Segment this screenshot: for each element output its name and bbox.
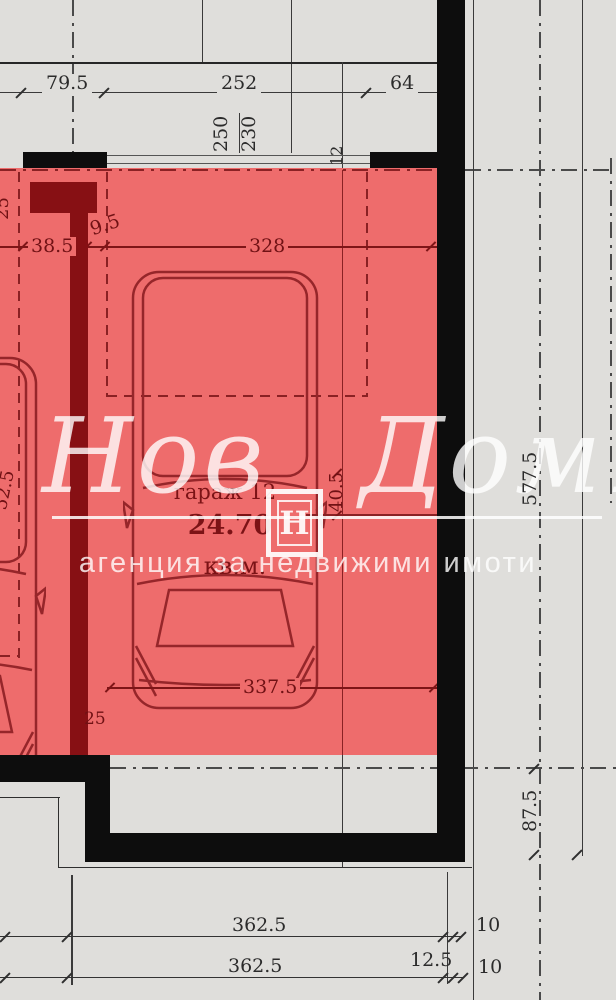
dim-label-interior-left: 38.5: [28, 237, 76, 256]
dim-tick: [98, 87, 109, 98]
wall-top-left: [23, 152, 107, 168]
watermark-underline: [52, 516, 602, 519]
dim-label-bottom-row2-wall: 12.5: [410, 951, 452, 970]
wall-line-upper-2: [291, 0, 292, 153]
axis-line-horizontal-768: [110, 767, 616, 769]
wall-step-vertical: [85, 755, 110, 862]
dim-label-interior-width: 328: [246, 237, 288, 256]
wall-bottom: [85, 833, 465, 862]
dim-tick: [528, 849, 539, 860]
dimension-line-bottom-1: [0, 936, 462, 937]
axis-line-in-red: [0, 169, 437, 171]
dim-label-right-lower: 87.5: [521, 790, 540, 832]
dimension-line-bottom-2: [0, 977, 464, 978]
dim-label-top-right: 64: [386, 74, 418, 93]
dim-label-bottom-row1: 362.5: [228, 916, 290, 935]
dim-label-depth: 337.5: [240, 678, 300, 697]
dim-tick: [457, 972, 468, 983]
extension-line-x72: [71, 875, 73, 985]
dim-label-step: 25: [84, 711, 106, 728]
wall-outline-step-v: [58, 797, 59, 868]
dashed-rect-left: [106, 172, 108, 397]
dim-label-bottom-row1-offset: 10: [476, 916, 500, 935]
dim-label-bottom-row2-offset: 10: [478, 958, 502, 977]
dim-label-top-left: 79.5: [42, 74, 92, 93]
dim-label-bottom-row2: 362.5: [224, 957, 286, 976]
wall-line-upper-1: [202, 0, 203, 63]
dim-tick: [0, 972, 11, 983]
wall-outline-bottom: [58, 867, 472, 868]
floorplan-image: 38.5 9.5 328 337.5 25 25 52.5 40.5 гараж…: [0, 0, 616, 1000]
dim-label-right-total: 577.5: [521, 452, 540, 506]
dim-tick: [15, 87, 26, 98]
wall-outline-step-h: [0, 797, 60, 798]
dim-tick: [360, 87, 371, 98]
dim-tick: [0, 931, 11, 942]
watermark-logo-letter: Н: [277, 500, 312, 546]
dim-label-edge-top: 25: [0, 197, 12, 220]
dim-label-top-middle: 252: [217, 74, 261, 93]
dim-tick: [528, 763, 539, 774]
upper-wall-edge-line: [0, 62, 437, 64]
dim-label-door-outer: 250: [212, 116, 231, 152]
dim-label-wall-thickness: 12: [329, 146, 345, 166]
dashed-rect-right: [366, 172, 368, 397]
dim-label-pier: 9.5: [88, 212, 123, 239]
watermark-logo: Н: [266, 489, 323, 557]
dim-tick: [571, 849, 582, 860]
dim-label-door-inner: 230: [240, 116, 259, 152]
